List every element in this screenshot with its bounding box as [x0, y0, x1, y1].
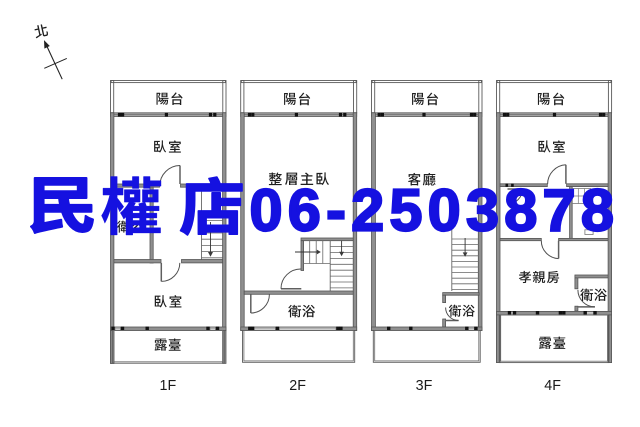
- svg-text:4F: 4F: [544, 378, 561, 394]
- svg-text:2F: 2F: [289, 378, 306, 394]
- svg-text:3F: 3F: [416, 378, 433, 394]
- svg-text:1F: 1F: [160, 378, 177, 394]
- svg-text:06-2503878: 06-2503878: [250, 177, 620, 244]
